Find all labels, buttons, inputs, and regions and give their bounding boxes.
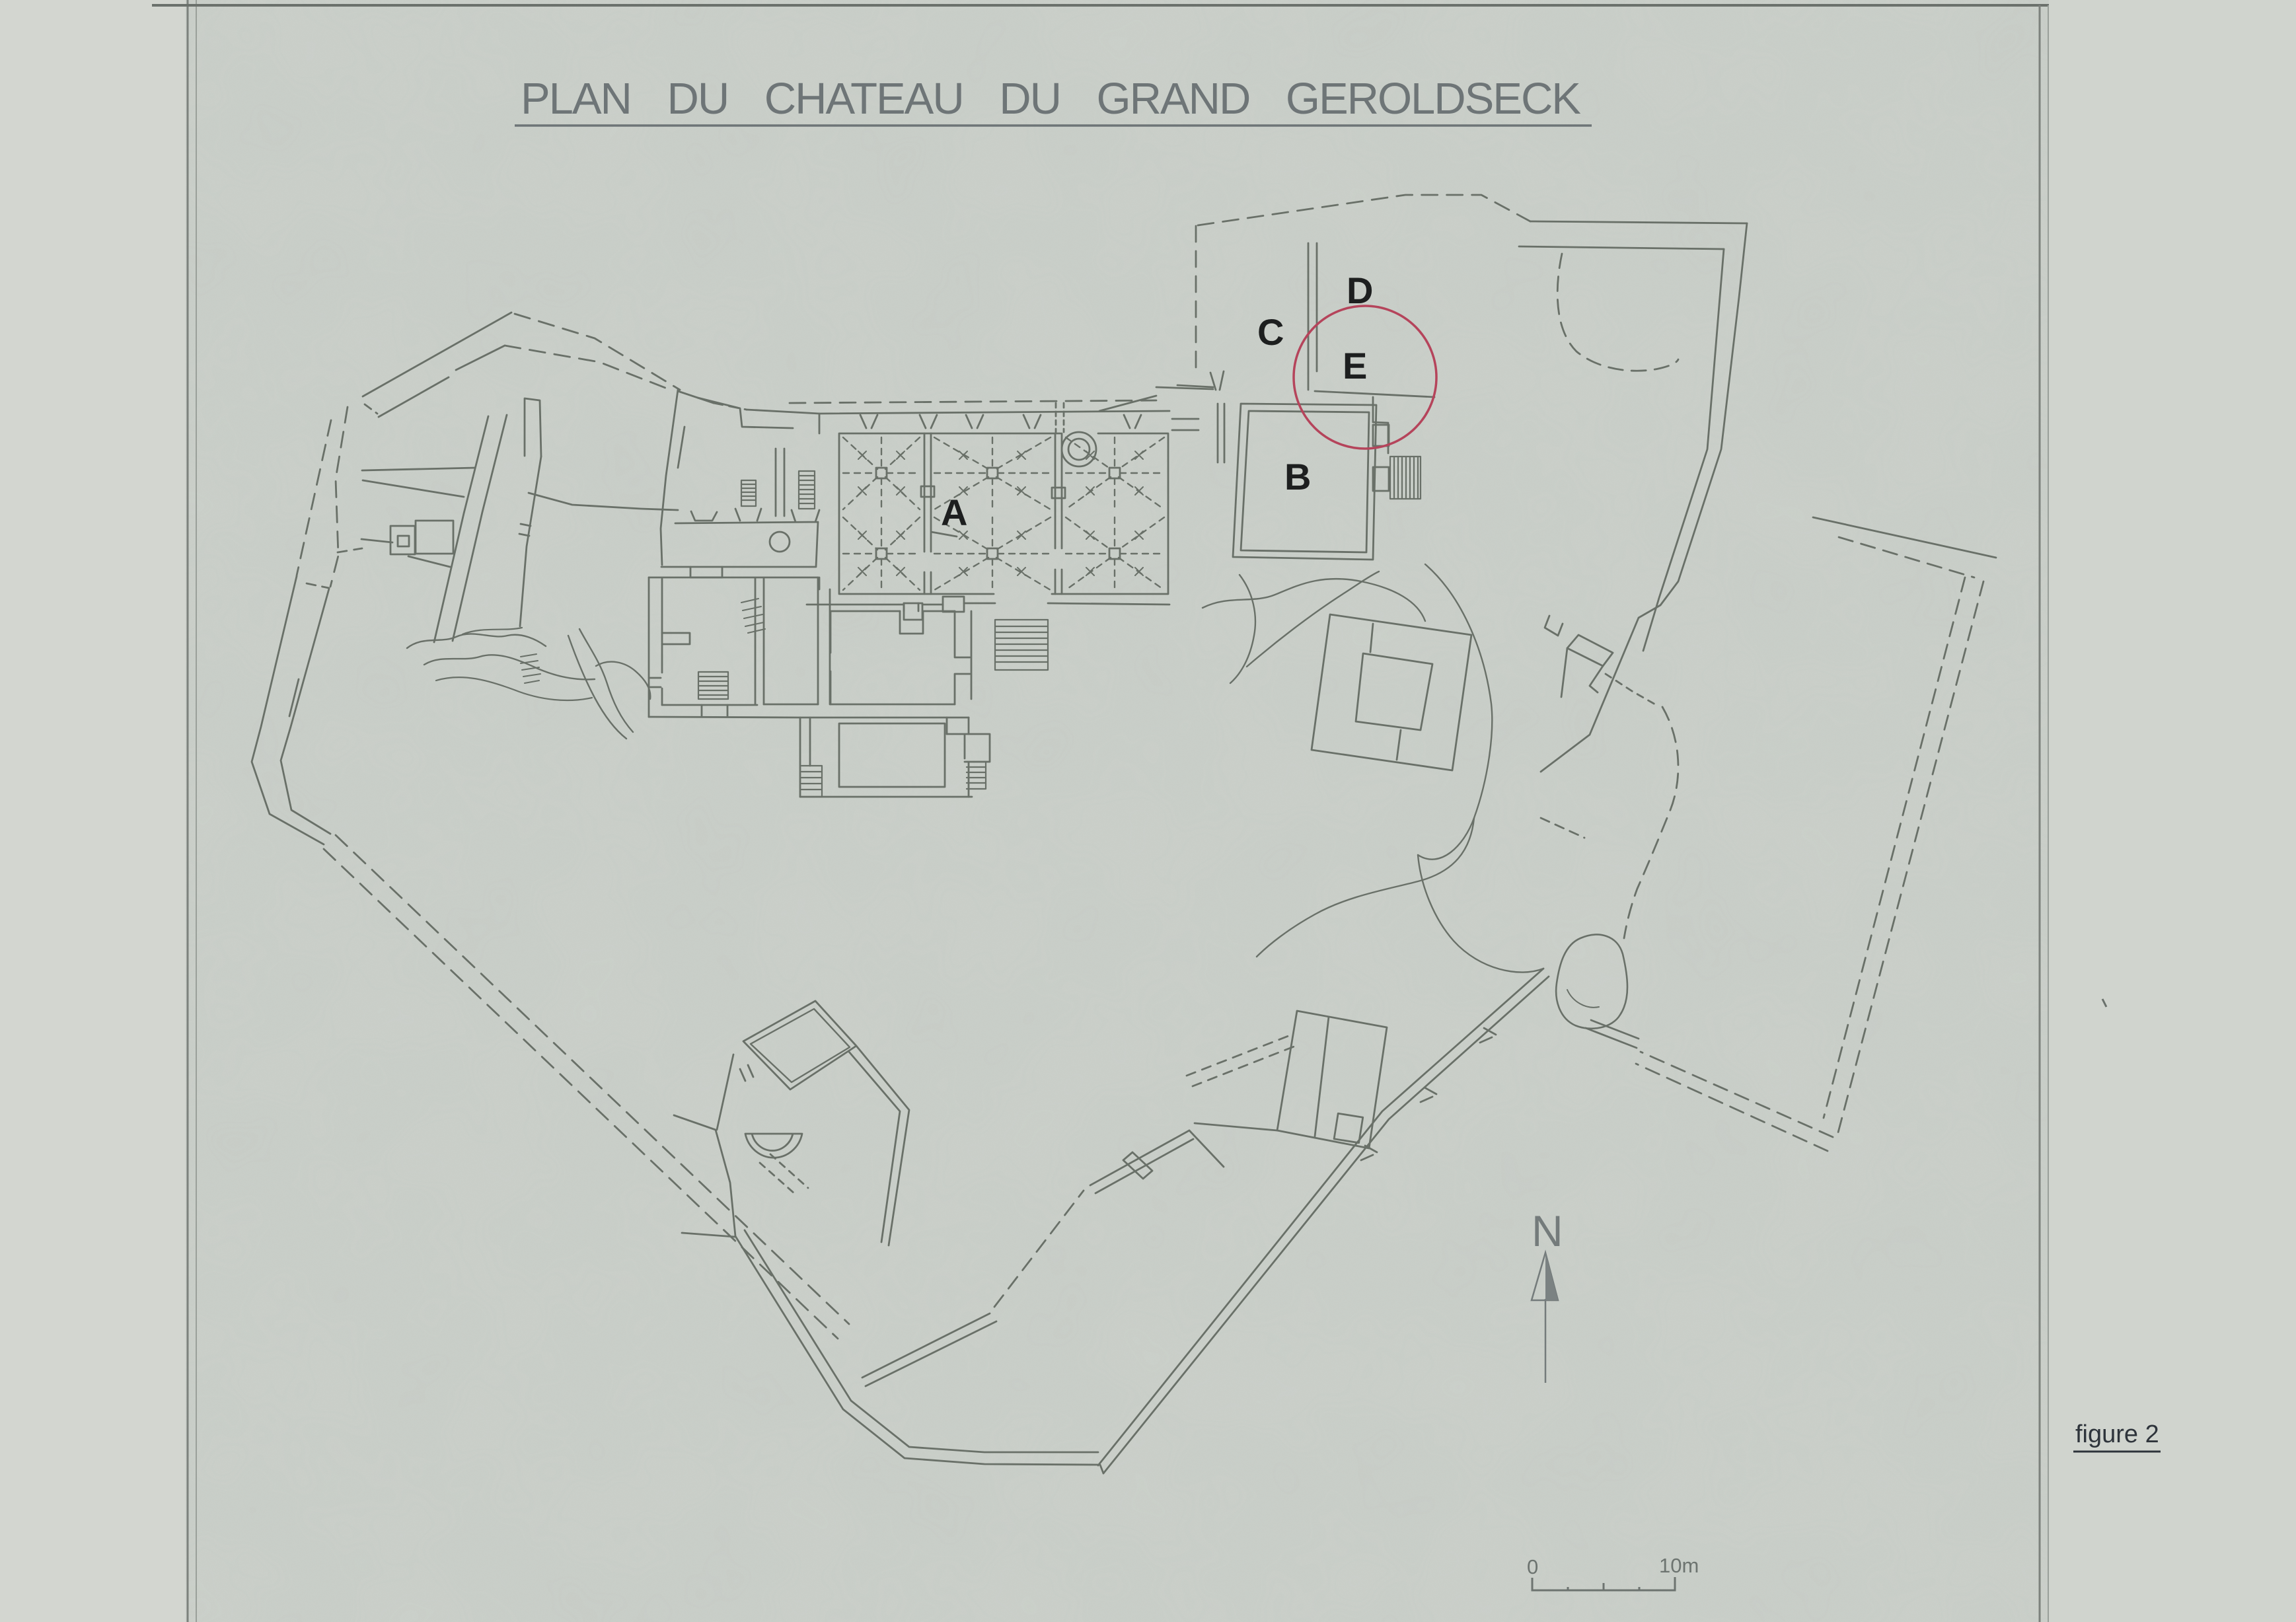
svg-text:PLAN DU CHATEAU DU GRAND GEROL: PLAN DU CHATEAU DU GRAND GEROLDSECK	[521, 74, 1586, 124]
svg-text:C: C	[1257, 311, 1284, 353]
svg-text:figure 2: figure 2	[2075, 1420, 2159, 1448]
svg-text:0: 0	[1527, 1555, 1538, 1578]
svg-text:N: N	[1532, 1206, 1563, 1255]
svg-text:B: B	[1284, 456, 1311, 498]
svg-text:E: E	[1343, 345, 1367, 387]
svg-text:A: A	[941, 492, 967, 533]
svg-text:10m: 10m	[1659, 1554, 1699, 1577]
